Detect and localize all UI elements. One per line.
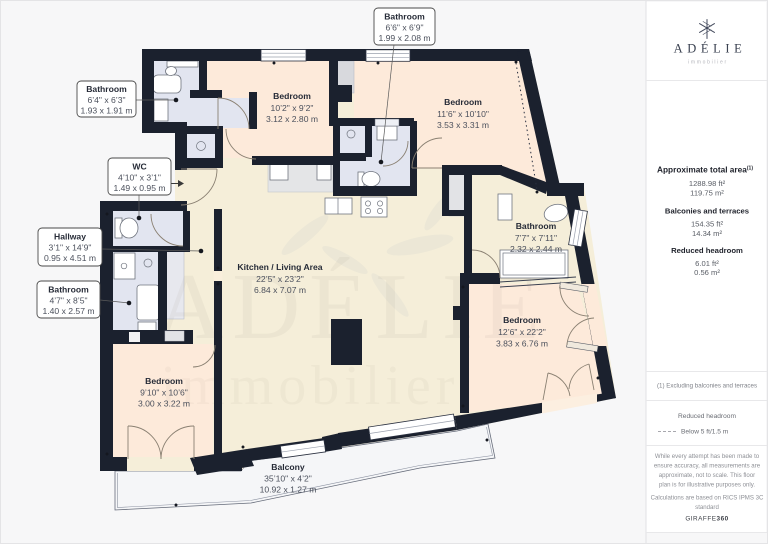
- svg-text:119.75 m²: 119.75 m²: [690, 189, 724, 198]
- svg-text:Calculations are based on RICS: Calculations are based on RICS IPMS 3C: [651, 495, 764, 502]
- svg-text:Hallway: Hallway: [54, 232, 86, 242]
- svg-text:4’7" x 8’5": 4’7" x 8’5": [49, 296, 87, 306]
- svg-text:3.83 x 6.76 m: 3.83 x 6.76 m: [496, 339, 548, 349]
- svg-text:Balcony: Balcony: [271, 462, 305, 472]
- svg-text:12’6" x 22’2": 12’6" x 22’2": [498, 327, 546, 337]
- svg-text:Bedroom: Bedroom: [503, 315, 541, 325]
- svg-text:7’7" x 7’11": 7’7" x 7’11": [515, 233, 557, 243]
- svg-text:6.84 x 7.07 m: 6.84 x 7.07 m: [254, 285, 306, 295]
- svg-text:6.01 ft²: 6.01 ft²: [695, 259, 719, 268]
- svg-text:1.93 x 1.91 m: 1.93 x 1.91 m: [80, 106, 132, 116]
- svg-text:Reduced headroom: Reduced headroom: [678, 413, 736, 420]
- svg-text:4’10" x 3’1": 4’10" x 3’1": [118, 173, 161, 183]
- svg-text:6’4" x 6’3": 6’4" x 6’3": [87, 95, 125, 105]
- svg-text:plan is for illustrative purpo: plan is for illustrative purposes only.: [659, 482, 755, 489]
- svg-text:approximate, not to scale. Thi: approximate, not to scale. This floor: [659, 472, 755, 479]
- svg-text:10’2" x 9’2": 10’2" x 9’2": [271, 103, 314, 113]
- svg-text:Bathroom: Bathroom: [516, 221, 557, 231]
- svg-text:2.32 x 2.44 m: 2.32 x 2.44 m: [510, 244, 562, 254]
- svg-text:Bathroom: Bathroom: [86, 84, 127, 94]
- svg-text:Balconies and terraces: Balconies and terraces: [665, 207, 749, 216]
- svg-text:154.35 ft²: 154.35 ft²: [691, 220, 724, 229]
- svg-text:3.00 x 3.22 m: 3.00 x 3.22 m: [138, 399, 190, 409]
- svg-text:Bedroom: Bedroom: [145, 376, 183, 386]
- svg-text:standard: standard: [695, 504, 719, 511]
- svg-text:22’5" x 23’2": 22’5" x 23’2": [256, 274, 304, 284]
- svg-text:3.12 x 2.80 m: 3.12 x 2.80 m: [266, 114, 318, 124]
- svg-text:1.99 x 2.08 m: 1.99 x 2.08 m: [378, 33, 430, 43]
- svg-text:14.34 m²: 14.34 m²: [692, 229, 722, 238]
- svg-text:ADÉLIE: ADÉLIE: [674, 42, 747, 56]
- svg-text:35’10" x 4’2": 35’10" x 4’2": [264, 474, 312, 484]
- svg-text:WC: WC: [132, 162, 146, 172]
- svg-text:1288.98 ft²: 1288.98 ft²: [689, 179, 726, 188]
- svg-text:immobilier: immobilier: [688, 60, 728, 66]
- svg-text:Bathroom: Bathroom: [48, 285, 89, 295]
- svg-text:9’10" x 10’6": 9’10" x 10’6": [140, 388, 188, 398]
- svg-text:Below 5 ft/1.5 m: Below 5 ft/1.5 m: [681, 429, 729, 436]
- svg-text:While every attempt has been m: While every attempt has been made to: [655, 453, 760, 460]
- svg-text:3.53 x 3.31 m: 3.53 x 3.31 m: [437, 120, 489, 130]
- svg-text:Bedroom: Bedroom: [444, 97, 482, 107]
- svg-text:6’6" x 6’9": 6’6" x 6’9": [385, 23, 423, 33]
- svg-text:Bedroom: Bedroom: [273, 91, 311, 101]
- svg-text:Approximate total area(1): Approximate total area(1): [657, 165, 753, 175]
- svg-text:Reduced headroom: Reduced headroom: [671, 246, 743, 255]
- svg-text:11’6" x 10’10": 11’6" x 10’10": [437, 109, 489, 119]
- svg-text:3’1" x 14’9": 3’1" x 14’9": [49, 243, 92, 253]
- svg-text:ensure accuracy, all measureme: ensure accuracy, all measurements are: [654, 463, 761, 470]
- svg-text:Kitchen / Living Area: Kitchen / Living Area: [237, 262, 322, 272]
- svg-text:immobilier: immobilier: [161, 355, 460, 417]
- svg-text:Bathroom: Bathroom: [384, 12, 425, 22]
- svg-text:1.49 x 0.95 m: 1.49 x 0.95 m: [113, 183, 165, 193]
- svg-text:GIRAFFE360: GIRAFFE360: [685, 516, 728, 523]
- svg-text:0.56 m²: 0.56 m²: [694, 268, 720, 277]
- svg-text:10.92 x 1.27 m: 10.92 x 1.27 m: [260, 485, 317, 495]
- svg-text:1.40 x 2.57 m: 1.40 x 2.57 m: [42, 306, 94, 316]
- svg-text:(1) Excluding balconies and te: (1) Excluding balconies and terraces: [657, 383, 757, 390]
- svg-text:0.95 x 4.51 m: 0.95 x 4.51 m: [44, 253, 96, 263]
